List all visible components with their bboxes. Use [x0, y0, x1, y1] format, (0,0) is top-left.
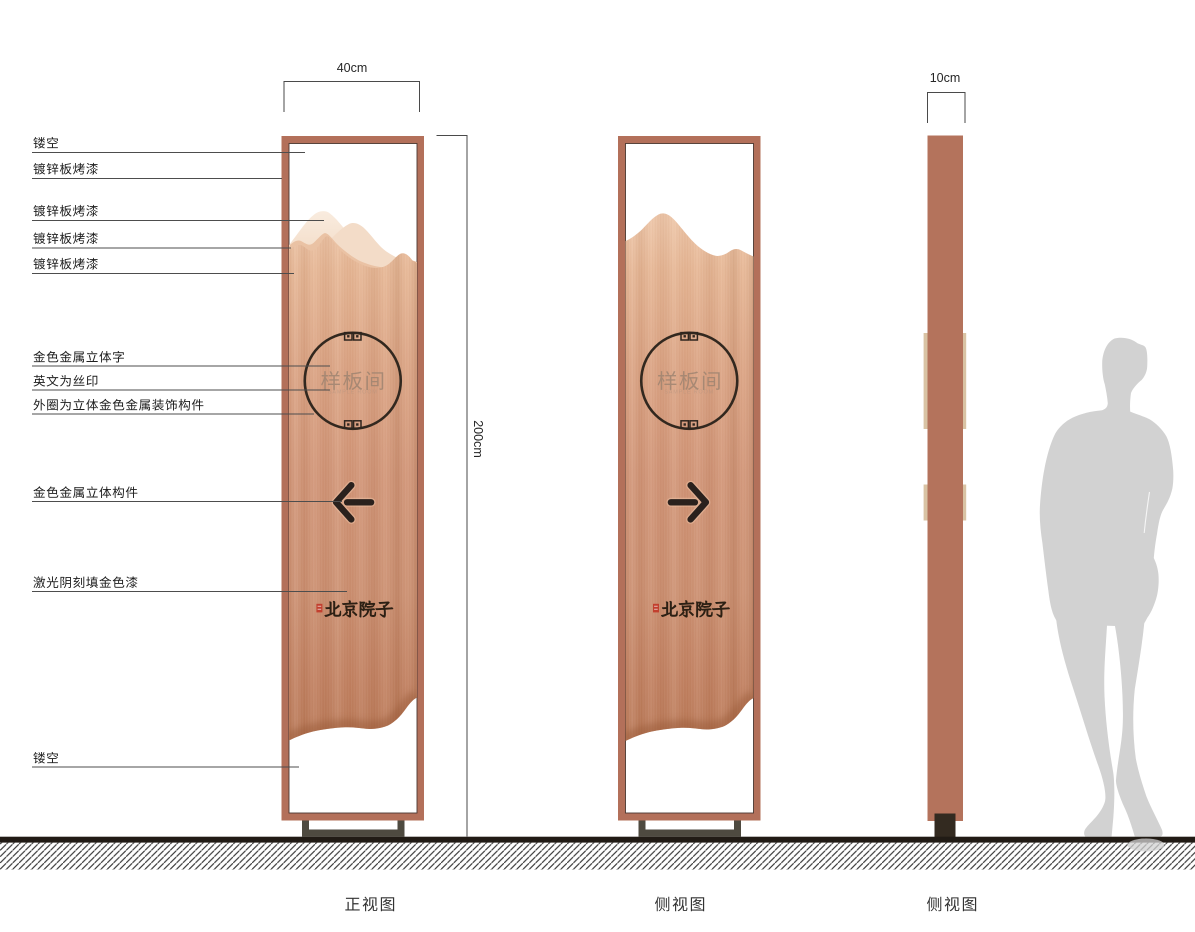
svg-text:SAMPLE ROOM: SAMPLE ROOM: [664, 390, 714, 396]
svg-text:SAMPLE ROOM: SAMPLE ROOM: [328, 390, 378, 396]
svg-text:200cm: 200cm: [471, 420, 485, 458]
svg-text:10cm: 10cm: [930, 71, 961, 85]
svg-text:40cm: 40cm: [337, 61, 368, 75]
